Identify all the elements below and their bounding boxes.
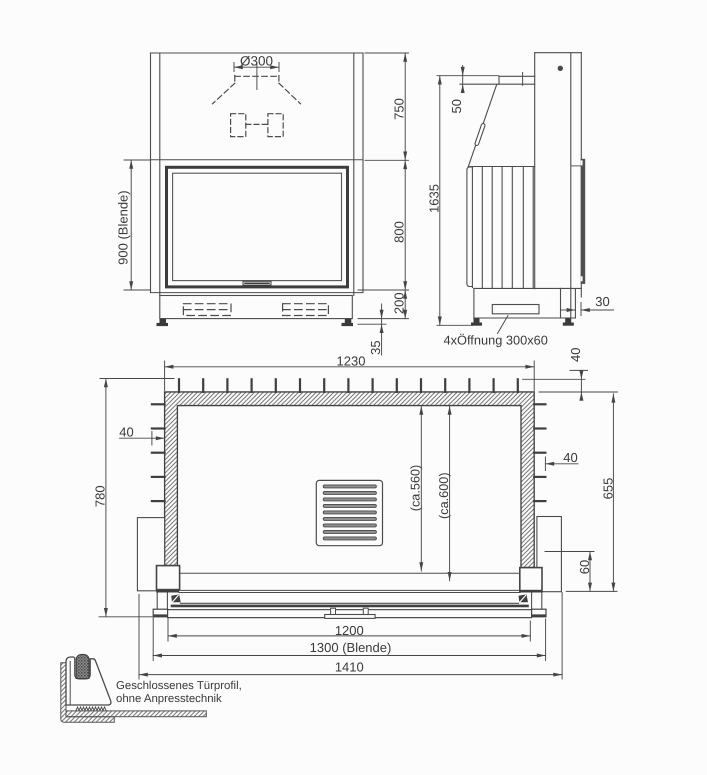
svg-text:4xÖffnung 300x60: 4xÖffnung 300x60	[444, 333, 548, 348]
svg-text:40: 40	[563, 450, 577, 465]
svg-text:1200: 1200	[335, 623, 364, 638]
svg-text:60: 60	[577, 560, 592, 574]
svg-text:30: 30	[595, 294, 609, 309]
svg-text:40: 40	[119, 425, 133, 440]
svg-text:800: 800	[392, 221, 407, 243]
svg-text:(ca.600): (ca.600)	[437, 472, 451, 519]
svg-text:1230: 1230	[337, 353, 366, 368]
svg-text:900 (Blende): 900 (Blende)	[115, 190, 130, 264]
svg-text:200: 200	[392, 292, 407, 314]
svg-text:35: 35	[368, 340, 383, 354]
svg-text:ohne Anpresstechnik: ohne Anpresstechnik	[116, 693, 222, 705]
svg-text:655: 655	[600, 478, 615, 500]
svg-text:1410: 1410	[335, 659, 364, 674]
svg-text:750: 750	[392, 98, 407, 120]
svg-text:40: 40	[568, 348, 583, 362]
svg-text:780: 780	[92, 485, 107, 507]
svg-text:50: 50	[449, 99, 464, 113]
svg-text:1635: 1635	[426, 184, 441, 213]
svg-text:1300 (Blende): 1300 (Blende)	[310, 640, 392, 655]
svg-text:Geschlossenes Türprofil,: Geschlossenes Türprofil,	[116, 680, 242, 692]
svg-text:(ca.560): (ca.560)	[409, 465, 423, 512]
